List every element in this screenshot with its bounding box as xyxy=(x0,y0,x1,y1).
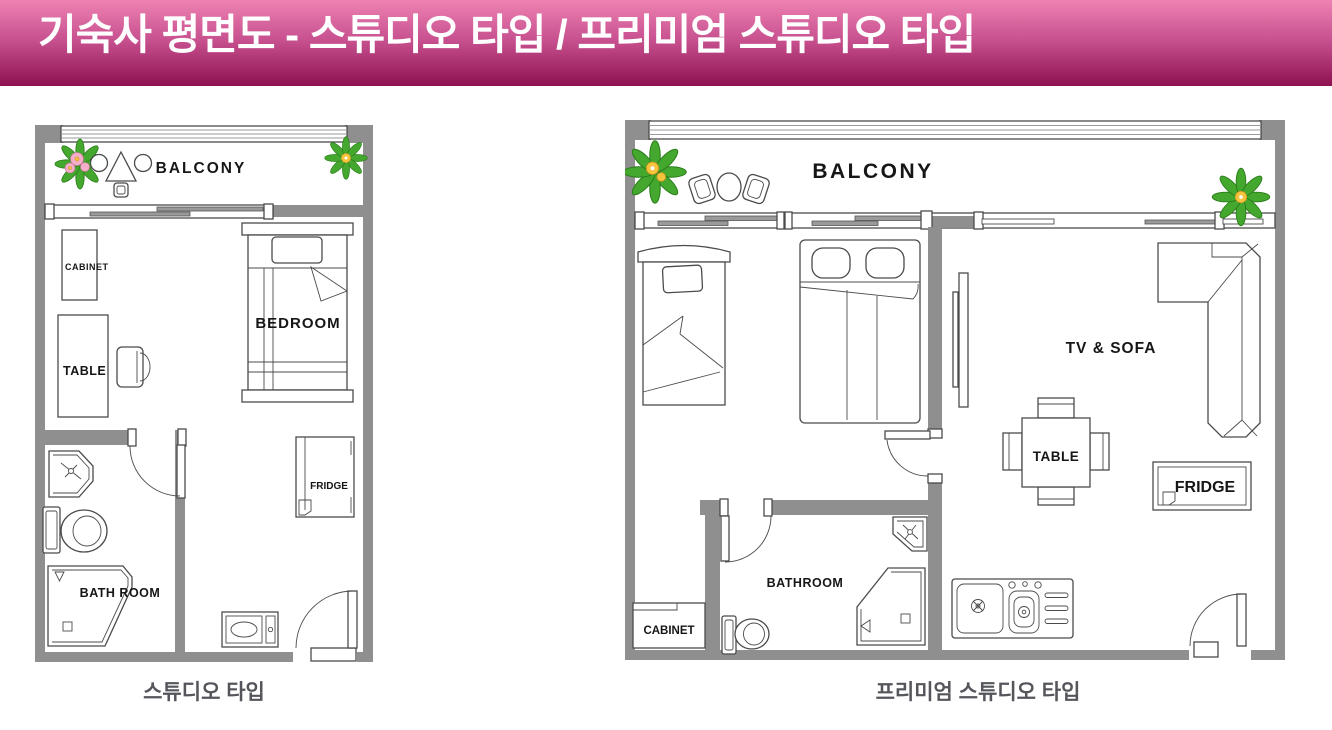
bedroom-label: BEDROOM xyxy=(255,315,340,332)
washbasin-icon xyxy=(49,451,93,497)
washbasin-icon xyxy=(893,517,927,551)
shower-icon xyxy=(857,568,925,645)
balcony-label: BALCONY xyxy=(156,160,247,177)
plant-icon xyxy=(625,141,686,204)
fridge-label: FRIDGE xyxy=(310,481,348,492)
balcony-label: BALCONY xyxy=(812,160,933,183)
balcony-table-set-icon xyxy=(688,173,771,205)
tv-sofa-label: TV & SOFA xyxy=(1066,340,1157,357)
kitchenette-icon xyxy=(222,612,278,647)
sofa-icon xyxy=(1158,243,1260,437)
sliding-window-icon xyxy=(45,204,373,219)
kitchen-sink-icon xyxy=(952,579,1073,638)
fridge-icon xyxy=(296,437,354,517)
entrance-door-icon xyxy=(1189,594,1251,660)
single-bed-icon xyxy=(242,223,353,402)
page-title: 기숙사 평면도 - 스튜디오 타입 / 프리미엄 스튜디오 타입 xyxy=(0,0,1332,58)
floorplan-studio: BALCONY CABINET TABLE BEDROOM xyxy=(35,125,373,662)
cabinet-label: CABINET xyxy=(643,625,694,637)
desk-label: TABLE xyxy=(63,364,106,378)
balcony-window-icon xyxy=(61,126,347,142)
title-banner: 기숙사 평면도 - 스튜디오 타입 / 프리미엄 스튜디오 타입 xyxy=(0,0,1332,86)
plant-icon xyxy=(1212,168,1270,226)
premium-caption: 프리미엄 스튜디오 타입 xyxy=(625,676,1285,706)
studio-caption: 스튜디오 타입 xyxy=(35,676,373,706)
balcony-table-set-icon xyxy=(91,152,152,197)
door-icon xyxy=(885,429,942,483)
balcony-window-icon xyxy=(649,121,1261,139)
bathroom-label: BATH ROOM xyxy=(80,586,161,600)
floorplan-premium-studio: BALCONY xyxy=(625,120,1285,660)
sliding-window-icon xyxy=(635,211,1275,229)
shower-icon xyxy=(48,566,132,646)
plant-icon xyxy=(325,137,368,180)
toilet-icon xyxy=(722,616,769,654)
chair-icon xyxy=(117,347,150,387)
slide: 기숙사 평면도 - 스튜디오 타입 / 프리미엄 스튜디오 타입 xyxy=(0,0,1332,730)
tv-icon xyxy=(953,273,968,407)
single-bed-icon xyxy=(638,246,730,406)
double-bed-icon xyxy=(800,240,920,423)
interior-wall xyxy=(928,227,942,515)
cabinet-label: CABINET xyxy=(65,262,109,272)
fridge-label: FRIDGE xyxy=(1175,479,1236,496)
table-label: TABLE xyxy=(1033,449,1080,464)
toilet-icon xyxy=(43,507,107,553)
bathroom-label: BATHROOM xyxy=(767,576,844,590)
entrance-door-icon xyxy=(293,591,357,662)
door-icon xyxy=(720,499,772,562)
